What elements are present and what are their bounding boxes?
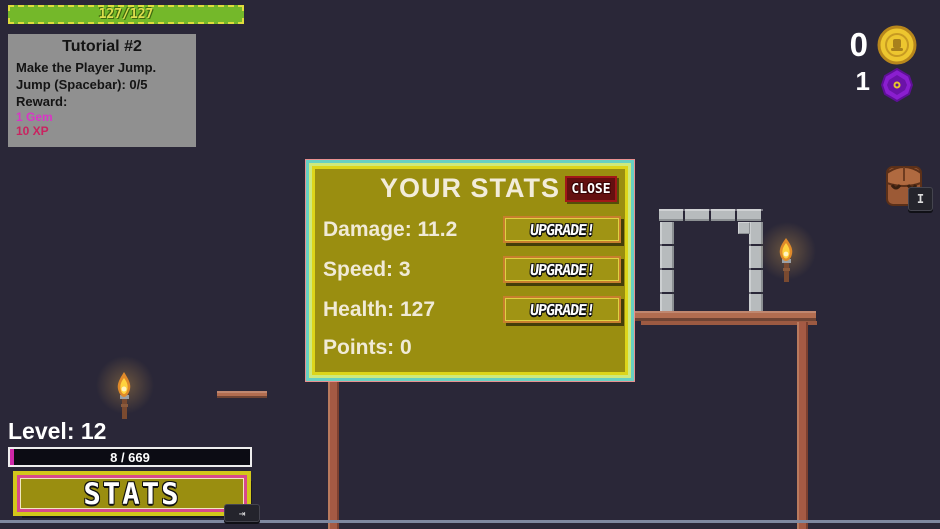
coin-count: 0 (838, 26, 868, 64)
stat-damage: Damage: 11.2 (323, 218, 457, 242)
close-button[interactable]: CLOSE (565, 176, 617, 202)
close-button-label: CLOSE (571, 182, 610, 197)
stone-block (738, 222, 750, 234)
upgrade-button-label: UPGRADE! (529, 301, 595, 319)
tutorial-panel: Tutorial #2 Make the Player Jump. Jump (… (8, 34, 196, 147)
tutorial-reward-xp: 10 XP (16, 124, 188, 138)
health-bar: 127/127 (8, 5, 244, 24)
coin-icon (877, 25, 917, 65)
tutorial-line: Make the Player Jump. (16, 59, 188, 76)
wood-post (328, 380, 339, 529)
health-bar-value: 127/127 (99, 7, 154, 22)
level-label: Level: 12 (8, 418, 106, 445)
wood-post (797, 322, 808, 529)
stat-speed: Speed: 3 (323, 258, 411, 282)
stat-health: Health: 127 (323, 298, 435, 322)
upgrade-button-label: UPGRADE! (529, 221, 595, 239)
floor-edge (0, 520, 940, 523)
tutorial-reward-gem: 1 Gem (16, 110, 188, 124)
tutorial-title: Tutorial #2 (16, 38, 188, 56)
wood-platform-small (217, 391, 267, 398)
gem-count: 1 (840, 66, 870, 97)
xp-bar: 8 / 669 (8, 447, 252, 467)
torch-icon (112, 370, 136, 422)
stone-arch-top (659, 209, 763, 221)
upgrade-button-label: UPGRADE! (529, 261, 595, 279)
stats-button-label: STATS (83, 477, 180, 511)
torch-icon (775, 236, 797, 286)
upgrade-health-button[interactable]: UPGRADE! (503, 296, 621, 323)
upgrade-speed-button[interactable]: UPGRADE! (503, 256, 621, 283)
wood-platform (634, 311, 816, 321)
tutorial-line: Reward: (16, 93, 188, 110)
stats-panel: YOUR STATS CLOSE Damage: 11.2 Speed: 3 H… (306, 160, 634, 381)
upgrade-damage-button[interactable]: UPGRADE! (503, 216, 621, 243)
tab-key-icon: ⇥ (224, 504, 260, 522)
gem-icon (881, 68, 913, 102)
xp-bar-value: 8 / 669 (10, 449, 250, 465)
wood-platform-lip (641, 321, 817, 325)
game-viewport: I 127/127 Tutorial #2 Make the Player Ju… (0, 0, 940, 529)
tutorial-line: Jump (Spacebar): 0/5 (16, 76, 188, 93)
stone-arch-left-pillar (660, 222, 674, 312)
stat-points: Points: 0 (323, 336, 412, 360)
stats-button[interactable]: STATS (17, 475, 247, 512)
inventory-key-icon: I (908, 187, 933, 211)
